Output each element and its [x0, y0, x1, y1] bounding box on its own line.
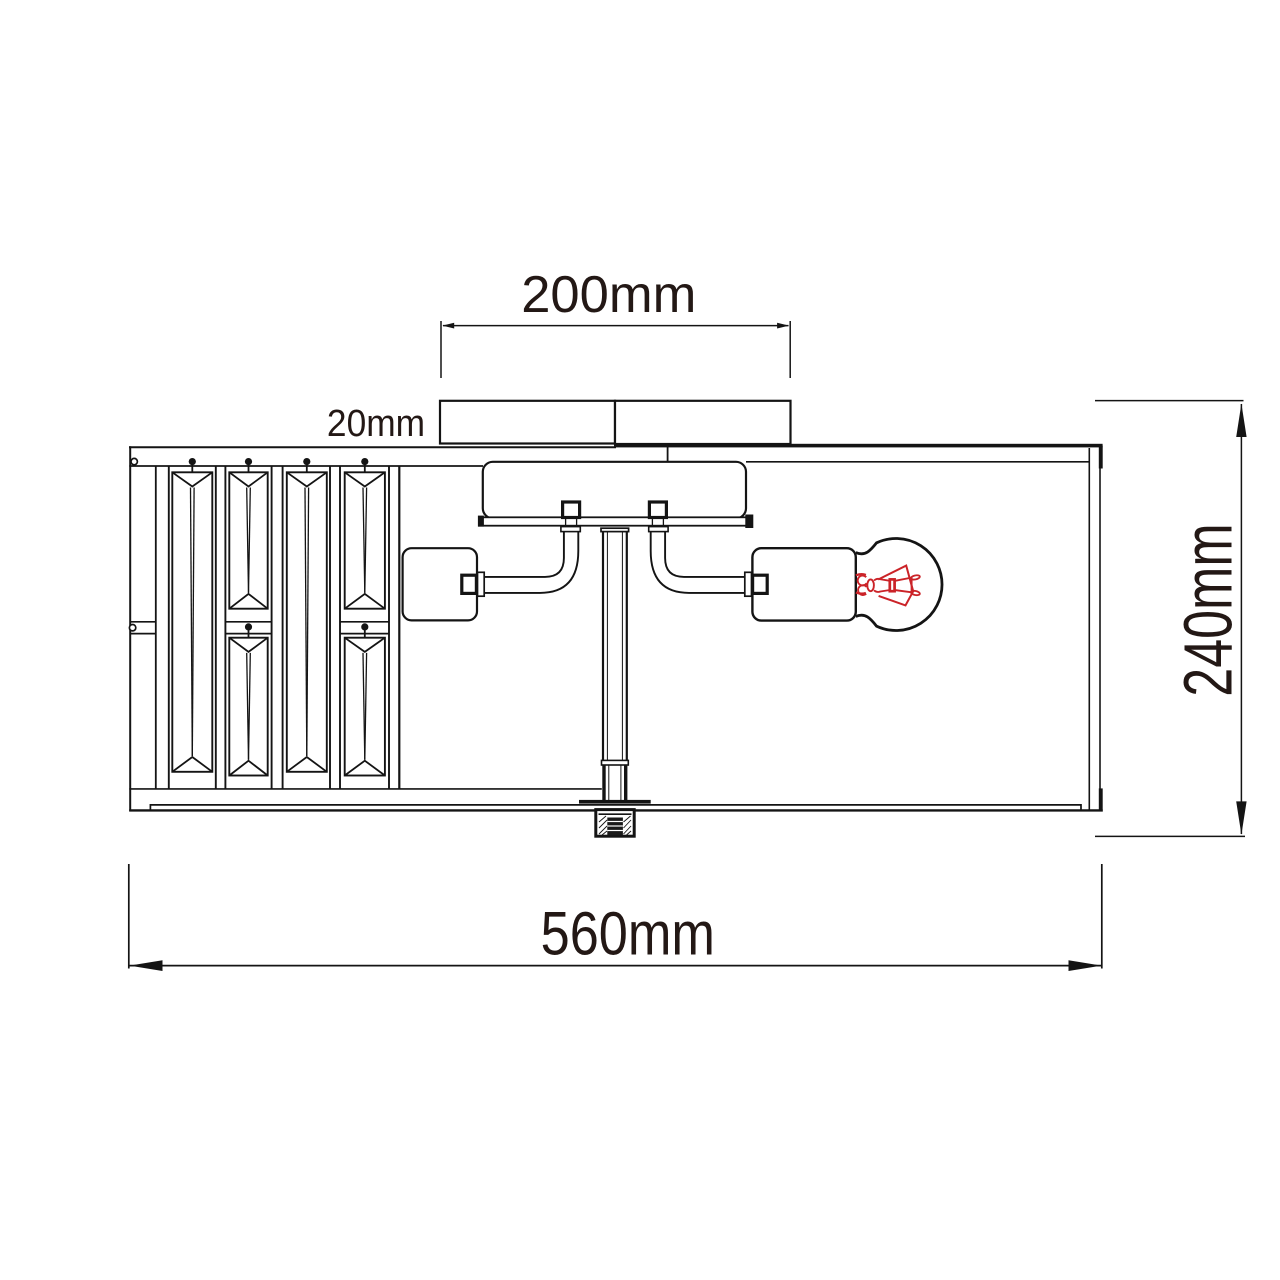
svg-text:240mm: 240mm: [1169, 523, 1246, 696]
svg-text:200mm: 200mm: [521, 266, 696, 323]
svg-text:560mm: 560mm: [541, 901, 715, 969]
svg-text:20mm: 20mm: [327, 402, 425, 444]
